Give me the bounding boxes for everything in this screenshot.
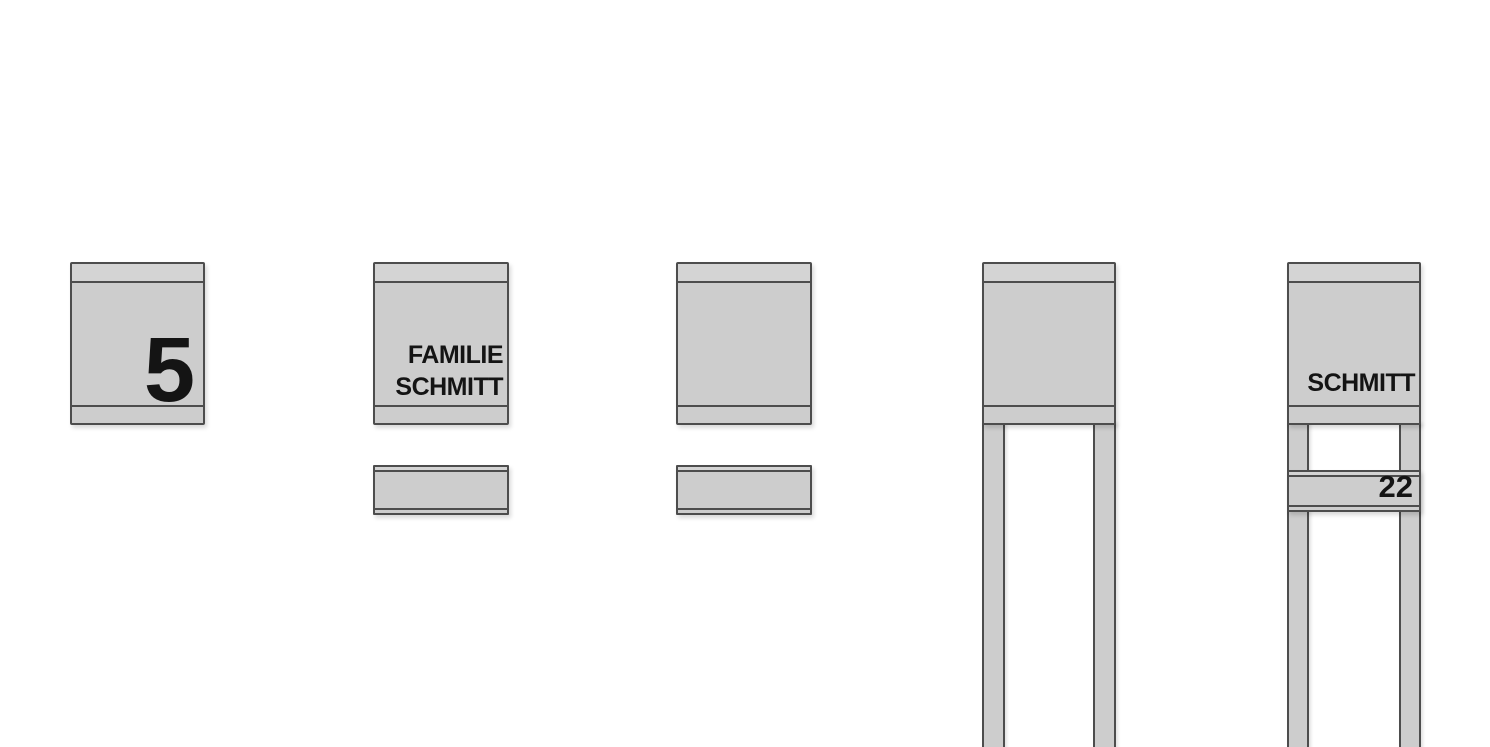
plate-bottom-rail [1289, 505, 1419, 510]
mailbox-variant-1-box: 5 [70, 262, 205, 425]
house-number-label: 22 [1379, 471, 1413, 502]
mailbox-variant-2-name-plate [373, 465, 509, 515]
mailbox-variant-3-name-plate [676, 465, 812, 515]
box-bottom-rail [375, 405, 507, 423]
family-name-label: SCHMITT [1307, 367, 1419, 405]
box-face: FAMILIE SCHMITT [375, 283, 507, 405]
mailbox-variants-illustration: 5 FAMILIE SCHMITT SCHMIT [0, 0, 1490, 747]
box-face [984, 283, 1114, 405]
box-top-rail [1289, 264, 1419, 283]
box-bottom-rail [984, 405, 1114, 423]
plate-face [375, 472, 507, 508]
box-bottom-rail [1289, 405, 1419, 423]
box-top-rail [678, 264, 810, 283]
box-bottom-rail [72, 405, 203, 423]
family-name-label: FAMILIE SCHMITT [395, 339, 507, 405]
plate-face [678, 472, 810, 508]
box-face [678, 283, 810, 405]
plate-bottom-rail [375, 508, 507, 513]
mailbox-variant-5-number-crossbar: 22 [1287, 470, 1421, 512]
box-face: SCHMITT [1289, 283, 1419, 405]
mailbox-variant-5-box: SCHMITT [1287, 262, 1421, 425]
box-bottom-rail [678, 405, 810, 423]
box-top-rail [984, 264, 1114, 283]
house-number-label: 5 [144, 336, 203, 405]
box-top-rail [375, 264, 507, 283]
mailbox-variant-4-right-post [1093, 423, 1116, 747]
plate-bottom-rail [678, 508, 810, 513]
box-top-rail [72, 264, 203, 283]
mailbox-variant-4-box [982, 262, 1116, 425]
box-face: 5 [72, 283, 203, 405]
mailbox-variant-3-box [676, 262, 812, 425]
mailbox-variant-4-left-post [982, 423, 1005, 747]
mailbox-variant-2-box: FAMILIE SCHMITT [373, 262, 509, 425]
